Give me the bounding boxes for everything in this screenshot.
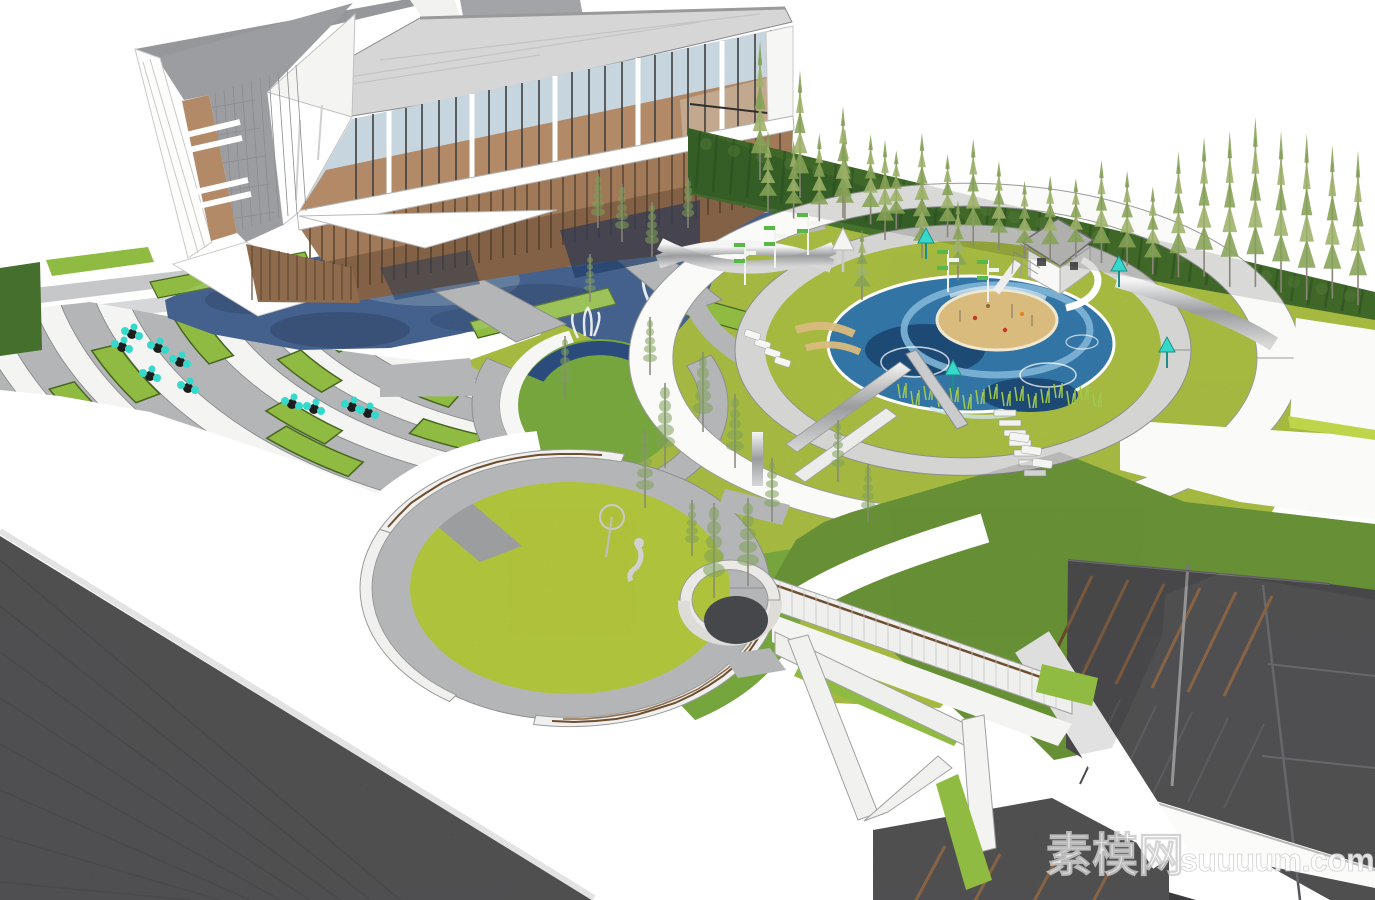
svg-text:suuuum.com: suuuum.com	[1180, 842, 1374, 878]
svg-text:素模网: 素模网	[1046, 829, 1184, 881]
